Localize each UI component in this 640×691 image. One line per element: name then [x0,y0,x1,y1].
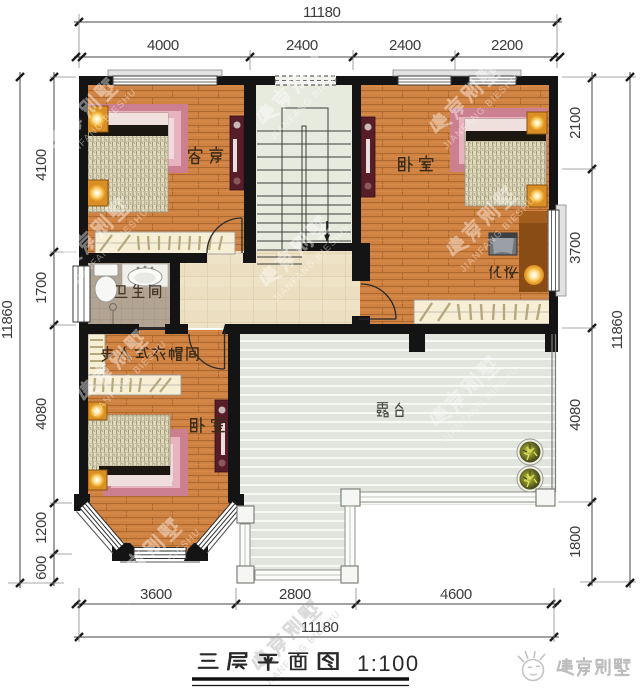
svg-text:11860: 11860 [0,301,16,340]
svg-text:2400: 2400 [389,37,421,54]
svg-text:1800: 1800 [567,526,584,558]
svg-text:1700: 1700 [33,272,50,304]
svg-text:3700: 3700 [567,232,584,264]
svg-text:1:100: 1:100 [357,651,420,676]
svg-text:4080: 4080 [567,399,584,431]
svg-text:2800: 2800 [279,586,311,603]
svg-text:1200: 1200 [33,512,50,544]
svg-text:4080: 4080 [33,398,50,430]
svg-text:2400: 2400 [286,37,318,54]
svg-text:600: 600 [33,556,50,580]
svg-text:4000: 4000 [147,37,179,54]
svg-text:4100: 4100 [33,149,50,181]
svg-text:2100: 2100 [567,107,584,139]
svg-text:2200: 2200 [491,37,523,54]
svg-text:11180: 11180 [303,4,341,21]
svg-text:11860: 11860 [609,311,626,350]
